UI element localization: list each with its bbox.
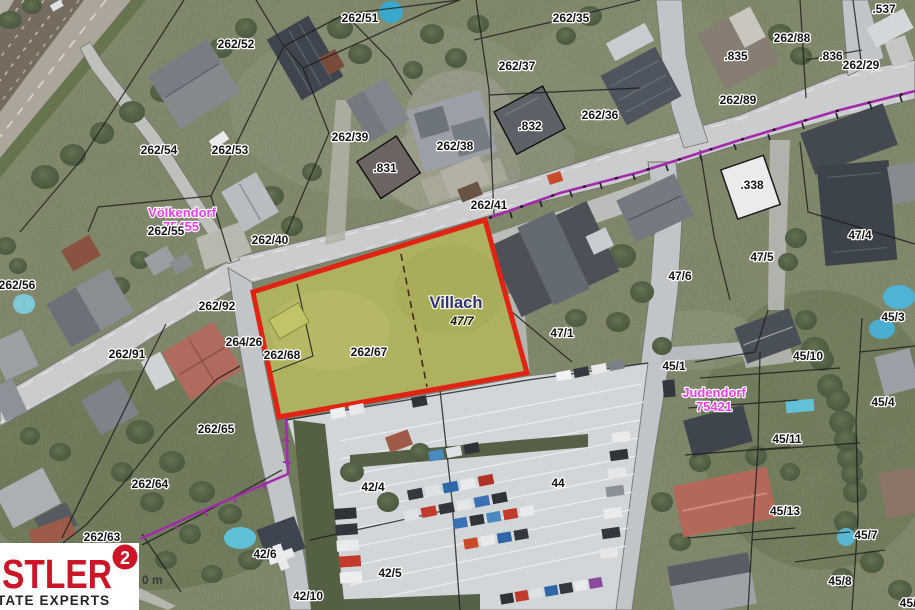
svg-text:262/35: 262/35 [553,11,590,25]
svg-text:262/37: 262/37 [499,59,536,73]
svg-text:262/64: 262/64 [132,477,169,491]
svg-text:262/29: 262/29 [843,58,880,72]
svg-text:262/92: 262/92 [199,299,236,313]
svg-text:.537: .537 [872,2,896,16]
svg-text:45/8: 45/8 [828,574,852,588]
svg-text:262/56: 262/56 [0,278,36,292]
svg-text:75421: 75421 [696,399,732,414]
svg-text:262/38: 262/38 [437,139,474,153]
svg-text:47/1: 47/1 [550,326,574,340]
svg-text:47/6: 47/6 [668,269,692,283]
svg-text:2: 2 [120,548,130,568]
svg-text:262/40: 262/40 [252,233,289,247]
svg-text:Völkendorf: Völkendorf [148,205,217,220]
svg-text:42/4: 42/4 [361,480,385,494]
svg-text:45/10: 45/10 [793,349,823,363]
svg-text:262/41: 262/41 [471,198,508,212]
svg-text:262/54: 262/54 [141,143,178,157]
svg-text:262/65: 262/65 [198,422,235,436]
svg-text:Judendorf: Judendorf [682,385,746,400]
svg-text:262/88: 262/88 [774,31,811,45]
svg-text:264/26: 264/26 [226,335,263,349]
svg-text:45/1: 45/1 [662,359,686,373]
svg-text:262/51: 262/51 [342,11,379,25]
svg-text:42/5: 42/5 [378,566,402,580]
svg-text:.832: .832 [518,119,542,133]
svg-text:45/: 45/ [900,596,915,610]
svg-text:STLER: STLER [2,551,112,597]
svg-text:47/7: 47/7 [449,314,475,328]
svg-text:42/6: 42/6 [253,547,277,561]
svg-text:.338: .338 [740,178,764,192]
svg-text:45/4: 45/4 [871,395,895,409]
svg-text:45/13: 45/13 [770,504,800,518]
svg-text:45/11: 45/11 [772,432,802,446]
svg-text:262/36: 262/36 [582,108,619,122]
svg-text:262/91: 262/91 [109,347,146,361]
svg-text:47/5: 47/5 [750,250,774,264]
svg-text:44: 44 [551,476,565,490]
svg-text:Villach: Villach [430,294,483,312]
svg-text:262/39: 262/39 [332,130,369,144]
svg-text:45/3: 45/3 [881,310,905,324]
svg-text:262/63: 262/63 [84,530,121,544]
svg-text:42/10: 42/10 [293,589,323,603]
svg-text:TATE EXPERTS: TATE EXPERTS [0,593,110,608]
svg-text:45/7: 45/7 [854,528,878,542]
svg-text:.836: .836 [819,49,843,63]
svg-text:0 m: 0 m [142,573,163,587]
svg-text:262/89: 262/89 [720,93,757,107]
svg-text:262/55: 262/55 [148,224,185,238]
svg-text:.835: .835 [724,49,748,63]
svg-text:262/53: 262/53 [212,143,249,157]
svg-text:262/52: 262/52 [218,37,255,51]
svg-text:.831: .831 [373,161,397,175]
svg-text:47/4: 47/4 [848,228,872,242]
svg-text:262/68: 262/68 [264,348,301,362]
svg-text:262/67: 262/67 [351,345,388,359]
